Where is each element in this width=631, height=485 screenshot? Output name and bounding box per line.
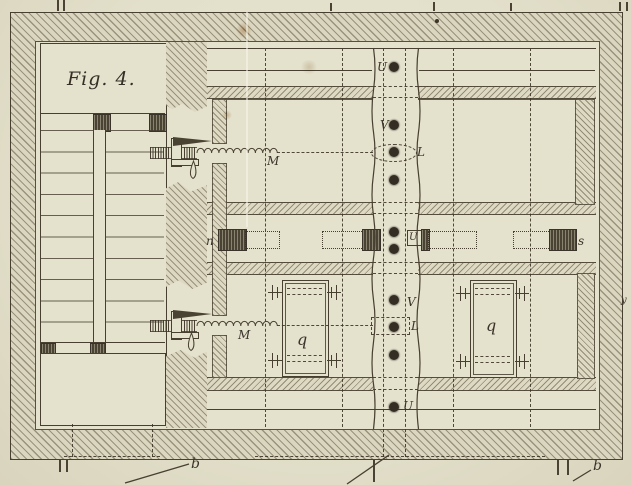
slot-u-label: U	[409, 233, 417, 243]
top-tick	[63, 0, 65, 11]
figure-title: Fig. 4.	[67, 68, 136, 90]
fox-stain	[236, 22, 252, 38]
bracket-foot-lower	[171, 332, 199, 339]
valve-hole	[389, 402, 399, 412]
valve-hole	[389, 227, 399, 237]
bottom-tab	[66, 458, 68, 472]
flange-bolt	[331, 355, 332, 366]
valve-hole	[389, 120, 399, 130]
slot-block	[218, 229, 247, 251]
top-tick	[330, 3, 332, 11]
hall-right-wall	[575, 99, 595, 205]
pointer-stroke-right	[573, 470, 591, 481]
q-chamber-left-label: q	[297, 332, 307, 348]
hidden-strip-edge	[373, 262, 418, 263]
spring-label-upper: M	[267, 155, 279, 167]
q-tie-line	[287, 355, 322, 356]
flange-bolt	[460, 286, 461, 301]
strip-guide-line	[383, 48, 384, 457]
flange-bolt	[277, 355, 278, 366]
flange-bolt	[524, 286, 525, 301]
hall-left-wall	[212, 335, 227, 378]
flange-bolt	[336, 285, 337, 300]
hidden-line	[255, 456, 545, 457]
ladder-rungs-left	[41, 130, 93, 343]
hole-label-L-upper: L	[417, 146, 425, 158]
flange-bolt	[465, 356, 466, 367]
spring-label-lower: M	[238, 329, 250, 341]
slot-n-label: n	[206, 235, 214, 247]
slot-travel-outline	[428, 231, 477, 249]
q-tie-line	[287, 294, 322, 295]
hall-bottom-rail	[207, 409, 596, 410]
flange-bolt	[268, 360, 282, 361]
hall-right-wall	[577, 273, 595, 379]
q-tie-line	[475, 362, 510, 363]
hall-upper-rail	[419, 70, 595, 71]
flange-bolt	[456, 293, 470, 294]
flange-bolt	[272, 285, 273, 300]
partition-wall-segment	[166, 350, 207, 428]
hall-top-line	[207, 48, 596, 49]
hidden-line	[152, 424, 153, 457]
flange-bolt	[268, 292, 282, 293]
flange-bolt	[515, 293, 529, 294]
flange-bolt	[460, 354, 461, 369]
hidden-line	[72, 424, 73, 457]
lever-ellipse-upper	[371, 144, 417, 162]
hidden-strip-edge	[373, 202, 418, 203]
guide-channel	[93, 130, 106, 342]
slot-travel-outline	[513, 231, 551, 249]
top-tick	[57, 0, 59, 11]
hole-label-L-lower: L	[411, 320, 419, 332]
flange-bolt	[336, 353, 337, 368]
bottom-tab	[567, 458, 569, 475]
partition-wall-segment	[166, 42, 207, 112]
slot-travel-outline	[245, 231, 280, 249]
flange-bolt	[519, 288, 520, 299]
strip-guide-line	[405, 48, 406, 457]
flange-bolt	[327, 292, 341, 293]
flange-bolt	[465, 288, 466, 299]
flange-bolt	[277, 287, 278, 298]
ink-speck	[435, 19, 439, 23]
valve-hole	[389, 175, 399, 185]
fox-stain	[222, 110, 232, 120]
flange-bolt	[331, 287, 332, 298]
hidden-strip-edge	[373, 273, 418, 274]
hidden-strip-edge	[373, 97, 418, 98]
q-tie-line	[475, 288, 510, 289]
hole-label-V-lower: V	[407, 296, 416, 308]
hole-label-U-bottom: U	[403, 400, 413, 412]
hidden-strip-edge	[373, 377, 418, 378]
valve-hole	[389, 244, 399, 254]
slot-travel-outline	[322, 231, 364, 249]
bracket-foot-upper	[171, 159, 199, 166]
q-chamber-right-label: q	[486, 318, 496, 334]
fox-stain	[300, 60, 318, 74]
hall-upper-rail	[207, 70, 372, 71]
flange-bolt	[327, 360, 341, 361]
lower-pit-chamber	[40, 353, 166, 426]
hidden-strip-edge	[373, 389, 418, 390]
top-tick	[433, 2, 435, 11]
bottom-tab	[59, 458, 61, 472]
pointer-stroke-left	[125, 464, 189, 483]
q-tie-line	[287, 361, 322, 362]
q-tie-line	[287, 288, 322, 289]
hidden-strip-edge	[373, 86, 418, 87]
flange-bolt	[519, 356, 520, 367]
bottom-tab	[557, 458, 559, 475]
ref-b-right: b	[593, 459, 602, 473]
q-tie-line	[475, 356, 510, 357]
flange-bolt	[524, 354, 525, 369]
slot-s-label: s	[578, 235, 584, 247]
hole-label-U-top: U	[377, 61, 387, 73]
ref-y-margin: y	[621, 296, 627, 306]
ladder-rungs-right	[104, 130, 164, 343]
hidden-strip-edge	[373, 213, 418, 214]
valve-hole	[389, 62, 399, 72]
spring-axis-lower	[277, 325, 373, 326]
valve-hole	[389, 350, 399, 360]
lever-box-lower	[371, 317, 410, 335]
paper-crease	[246, 12, 248, 227]
partition-wall-segment	[166, 182, 207, 289]
q-tie-line	[475, 294, 510, 295]
top-tick	[619, 2, 621, 11]
bottom-tab	[373, 458, 375, 482]
valve-hole	[389, 295, 399, 305]
flange-bolt	[456, 361, 470, 362]
flange-bolt	[272, 353, 273, 368]
spring-axis-upper	[277, 152, 373, 153]
hall-left-wall	[212, 99, 227, 144]
ref-b-left: b	[191, 457, 200, 471]
engraving-canvas: Fig. 4. q q	[0, 0, 631, 485]
flange-bolt	[515, 361, 529, 362]
top-tick	[510, 3, 512, 11]
slot-block	[362, 229, 381, 251]
top-tick	[626, 2, 628, 11]
hidden-line	[64, 456, 160, 457]
hole-label-V-upper: V	[380, 119, 389, 131]
slot-block	[549, 229, 577, 251]
